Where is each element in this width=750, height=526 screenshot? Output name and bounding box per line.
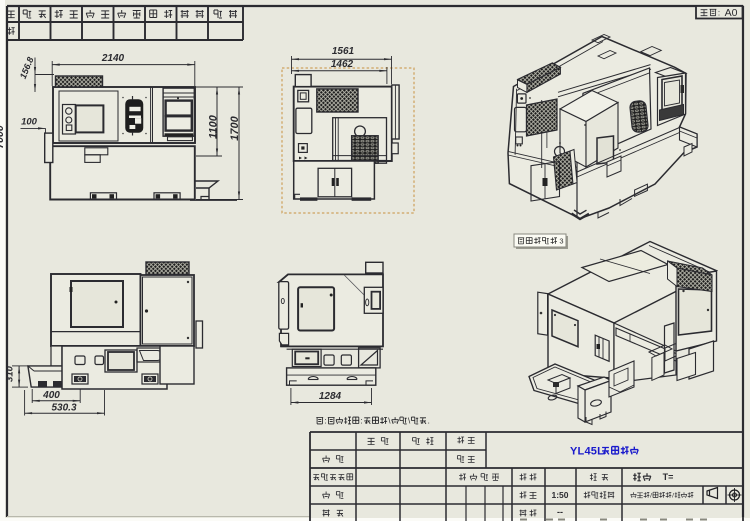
svg-text:/: / [672, 492, 674, 499]
svg-text:3: 3 [559, 237, 563, 246]
svg-text:A0: A0 [725, 7, 738, 19]
svg-text::: : [718, 9, 720, 18]
svg-text:1561: 1561 [332, 46, 355, 57]
svg-text:310: 310 [5, 365, 16, 382]
svg-text:100: 100 [21, 117, 38, 128]
svg-text:2140: 2140 [101, 53, 125, 64]
svg-text:.: . [428, 416, 430, 425]
svg-text:7000: 7000 [0, 125, 6, 149]
svg-text::: : [324, 416, 326, 425]
svg-text:/: / [650, 492, 652, 499]
svg-text:530.3: 530.3 [51, 403, 76, 414]
svg-text:--: -- [557, 507, 563, 517]
svg-text:1284: 1284 [319, 391, 342, 402]
svg-text::: : [360, 416, 362, 425]
svg-text:YL45L: YL45L [570, 446, 604, 458]
svg-text:400: 400 [42, 390, 60, 401]
svg-text:1:50: 1:50 [551, 490, 568, 500]
svg-text:1100: 1100 [208, 114, 220, 139]
svg-text:1462: 1462 [331, 59, 354, 70]
svg-text:T=: T= [663, 472, 674, 482]
